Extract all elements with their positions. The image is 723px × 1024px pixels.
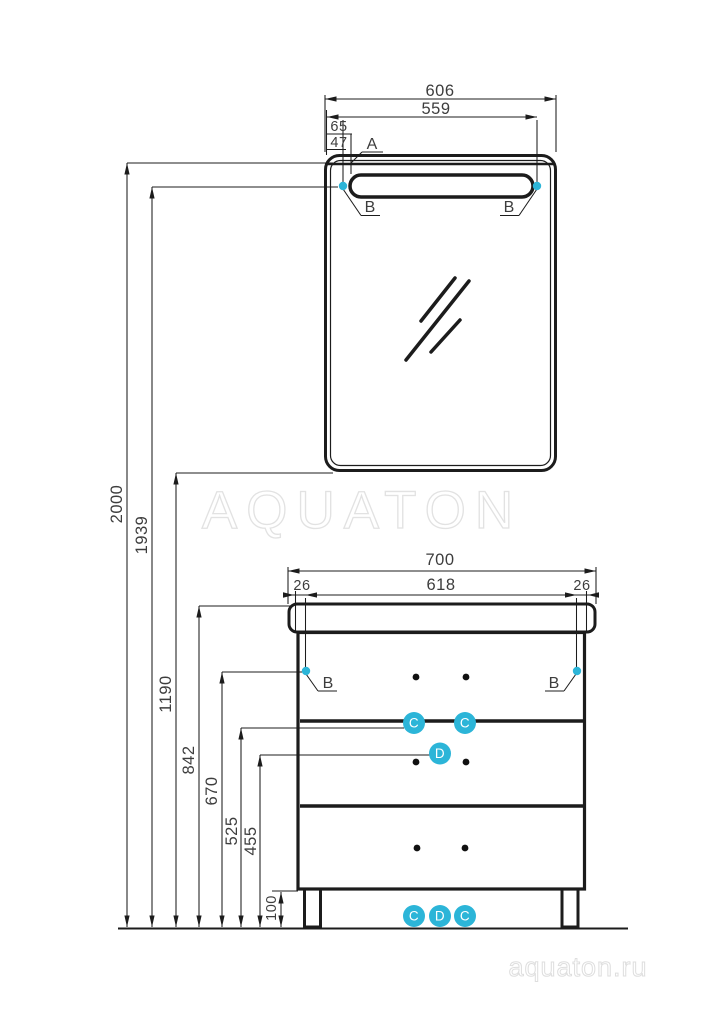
callout-b-vanity-right: B — [549, 675, 560, 692]
dim-606: 606 — [425, 82, 454, 100]
mirror-point-left — [339, 182, 347, 190]
mount-point-dots — [302, 182, 581, 675]
dim-2000: 2000 — [108, 485, 126, 524]
vanity-unit — [289, 604, 595, 927]
dim-26-left: 26 — [293, 578, 310, 594]
mirror-outer-frame — [326, 156, 556, 471]
callout-leaders — [306, 152, 576, 691]
dim-670: 670 — [203, 776, 221, 805]
callout-letters: A B B B B — [323, 136, 560, 692]
fitting-badges: C C D C D C — [403, 712, 476, 927]
badge-c-upper-left: C — [403, 712, 425, 734]
dim-100: 100 — [264, 895, 280, 921]
badge-letter: C — [460, 716, 470, 731]
callout-b-vanity-left: B — [323, 675, 334, 692]
badge-letter: C — [460, 909, 470, 924]
dim-65: 65 — [330, 119, 347, 135]
dim-47: 47 — [330, 135, 347, 151]
leg-left — [305, 889, 321, 927]
dim-1190: 1190 — [157, 675, 175, 712]
badge-c-upper-right: C — [454, 712, 476, 734]
dim-618: 618 — [426, 576, 455, 594]
countertop — [289, 604, 595, 632]
leg-right — [562, 889, 578, 927]
callout-b-mirror-left: B — [365, 199, 376, 216]
badge-letter: C — [409, 909, 419, 924]
drawing-canvas: AQUATON aquaton.ru — [0, 0, 723, 1024]
center-watermark: AQUATON — [202, 481, 522, 540]
mirror-inner-frame — [331, 161, 551, 466]
callout-b-mirror-right: B — [504, 199, 515, 216]
lamp-capsule — [350, 175, 533, 197]
technical-drawing-page: AQUATON aquaton.ru — [0, 0, 723, 1024]
badge-letter: D — [435, 909, 445, 924]
dim-455: 455 — [242, 826, 260, 855]
badge-c-bottom-left: C — [403, 905, 425, 927]
mirror-cabinet — [326, 156, 556, 471]
mirror-reflection-strokes — [406, 278, 469, 360]
badge-d-middle: D — [429, 743, 451, 765]
badge-c-bottom-right: C — [454, 905, 476, 927]
dim-559: 559 — [421, 100, 450, 118]
dim-525: 525 — [223, 816, 241, 845]
dim-1939: 1939 — [133, 516, 151, 555]
mirror-point-right — [533, 182, 541, 190]
vanity-point-right — [573, 667, 581, 675]
callout-a: A — [367, 136, 378, 153]
dim-700: 700 — [425, 551, 454, 569]
badge-letter: D — [435, 746, 445, 761]
corner-watermark: aquaton.ru — [508, 952, 647, 982]
vanity-point-left — [302, 667, 310, 675]
dim-26-right: 26 — [573, 578, 590, 594]
badge-letter: C — [409, 716, 419, 731]
badge-d-bottom: D — [429, 905, 451, 927]
dim-842: 842 — [180, 745, 198, 774]
